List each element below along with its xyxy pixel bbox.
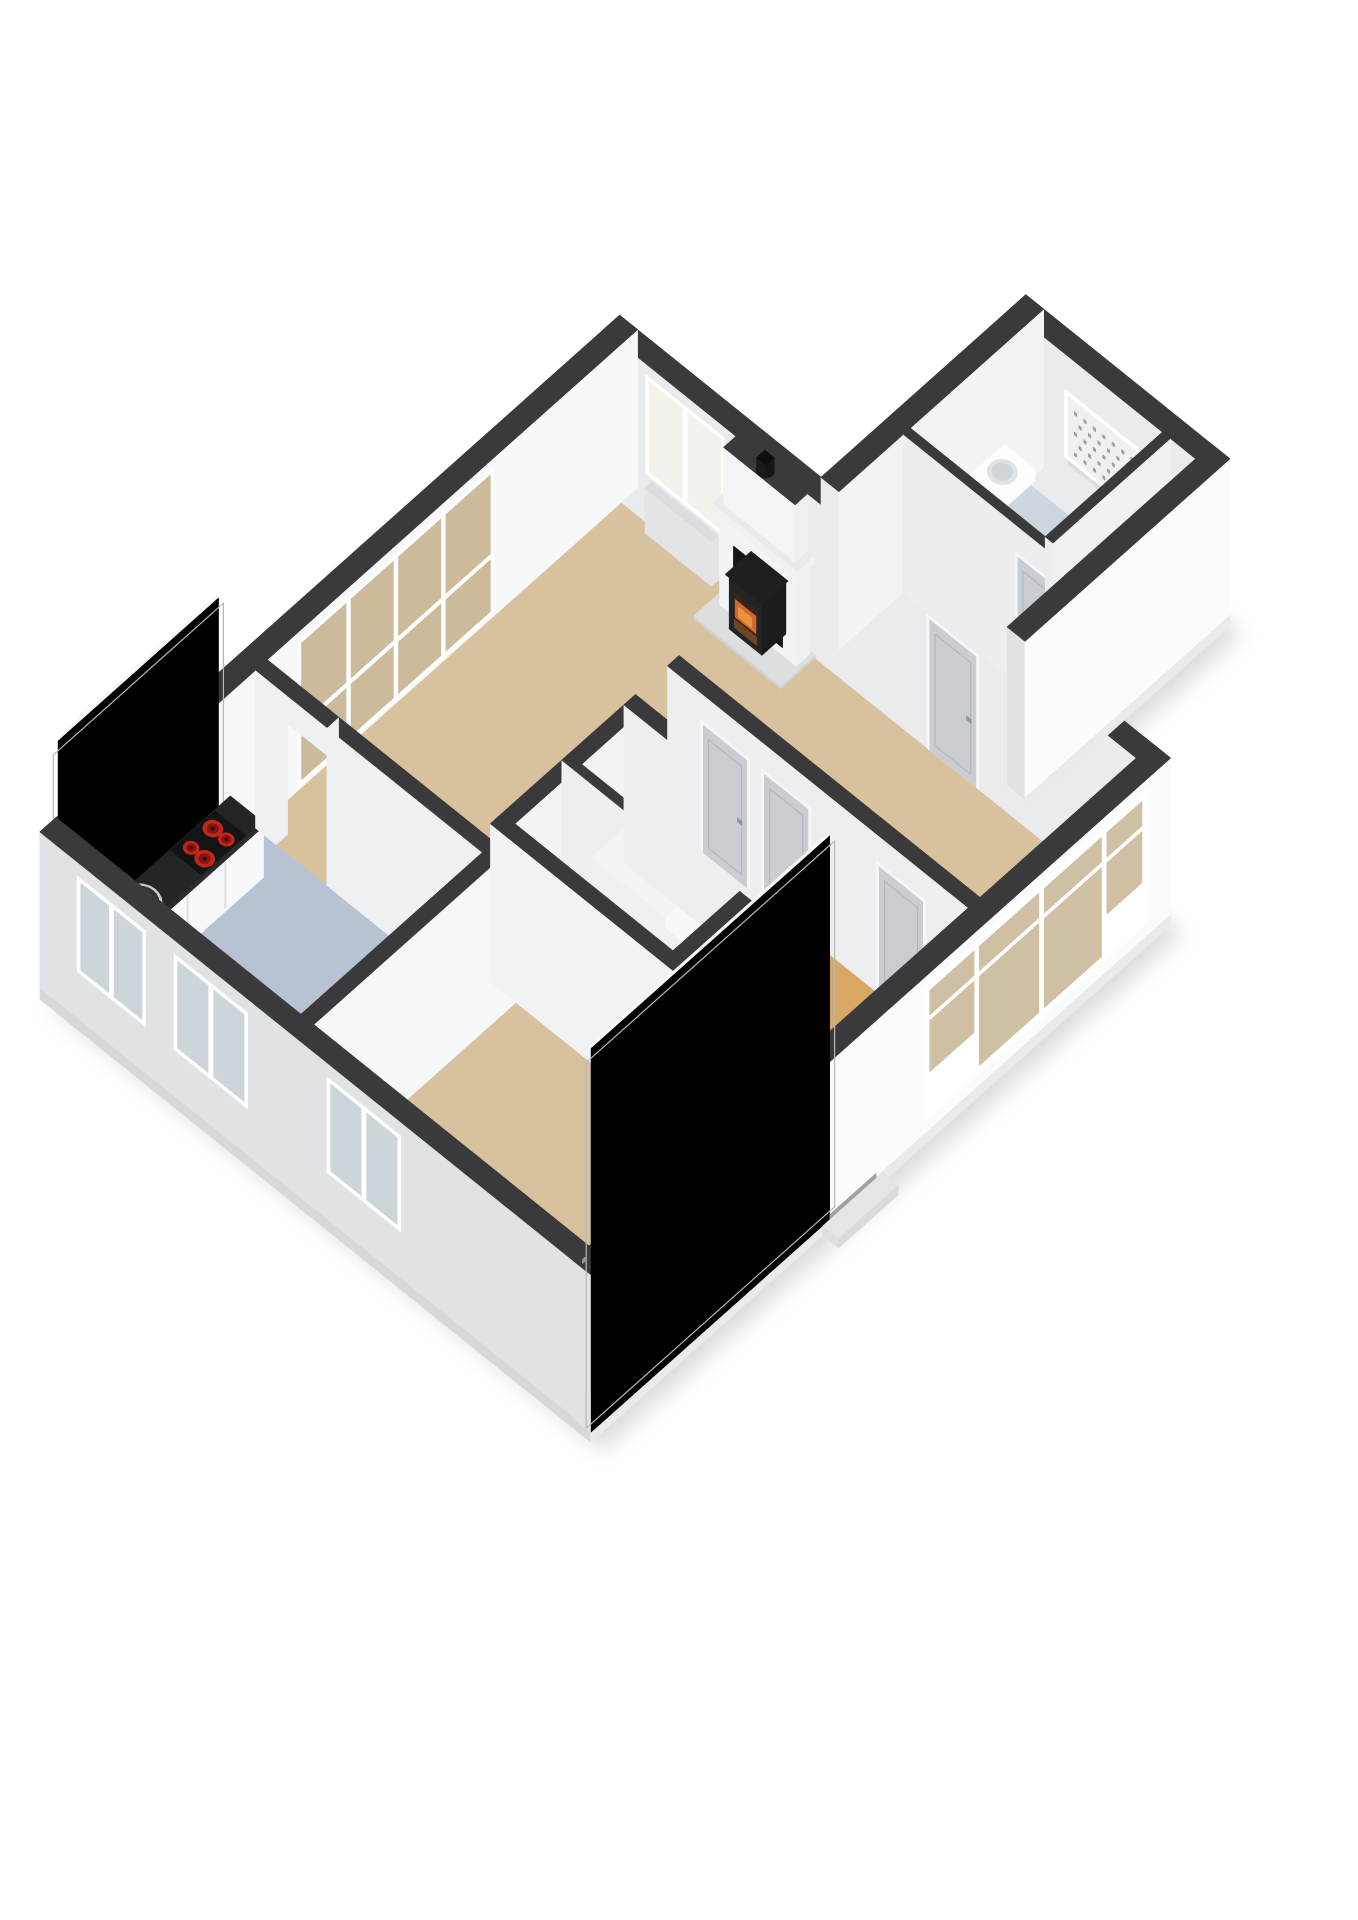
floorplan-svg [0, 0, 1358, 1920]
scene-root [40, 295, 1242, 1451]
floorplan-3d-view [0, 0, 1358, 1920]
